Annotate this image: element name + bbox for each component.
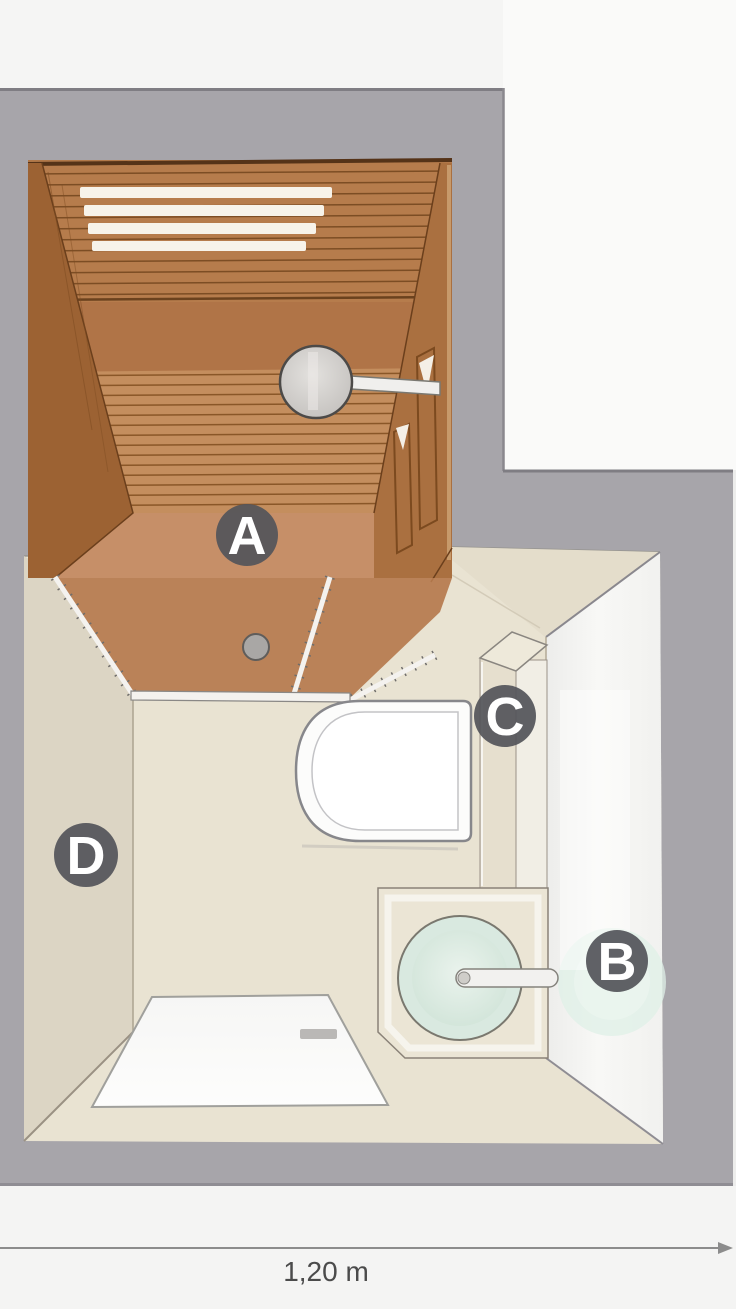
sauna-ceiling: [28, 158, 452, 308]
shower-head-highlight: [308, 352, 318, 410]
marker-b-letter: B: [598, 932, 637, 992]
marker-c: C: [474, 685, 536, 747]
floorplan-page: A B C D 1,20 m: [0, 0, 736, 1309]
marker-a: A: [216, 504, 278, 566]
marker-d: D: [54, 823, 118, 887]
mirror-wall: [546, 552, 666, 1144]
faucet: [456, 969, 558, 987]
toilet: [296, 701, 471, 849]
shower-threshold: [131, 691, 350, 702]
dimension-label: 1,20 m: [283, 1256, 369, 1287]
floorplan-canvas: A B C D 1,20 m: [0, 0, 736, 1309]
skylight-strip: [92, 241, 306, 251]
marker-a-letter: A: [228, 506, 267, 566]
top-right-notch: [503, 0, 736, 470]
marker-b: B: [586, 930, 648, 992]
toilet-seat: [312, 712, 458, 830]
vanity-counter: [378, 888, 558, 1058]
marker-c-letter: C: [486, 687, 525, 747]
faucet-arm: [456, 969, 558, 987]
mirror-highlight: [560, 690, 630, 970]
marker-d-letter: D: [67, 826, 106, 886]
shower-drain: [243, 634, 269, 660]
mat-drain-strip: [300, 1029, 337, 1039]
skylight-strip: [80, 187, 332, 198]
skylight-strip: [88, 223, 316, 234]
sauna: [28, 158, 452, 702]
faucet-base: [458, 972, 470, 984]
skylight-strip: [84, 205, 324, 216]
